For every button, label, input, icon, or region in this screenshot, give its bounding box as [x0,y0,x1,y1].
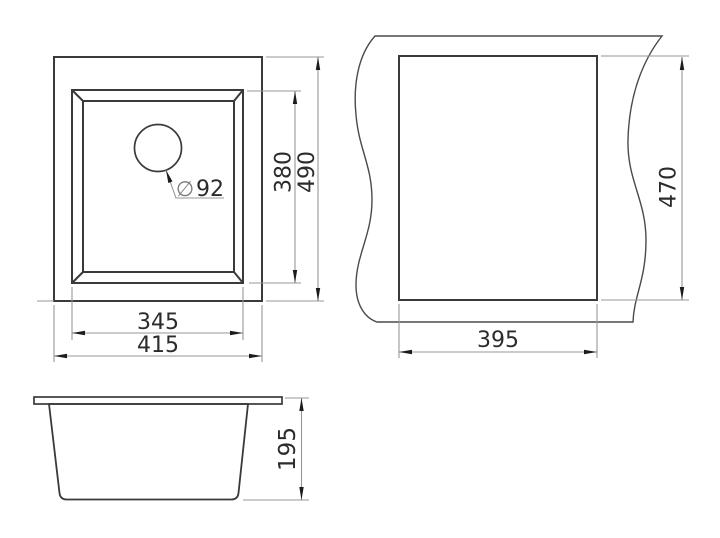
arrowhead-195-up [299,398,303,411]
drawing-canvas: ∅ 92 380 490 345 415 [0,0,720,538]
rim-bevel-bottom-left [72,272,83,283]
dim-text-195: 195 [275,427,301,471]
arrowhead-395-right [584,350,597,354]
rim-bevel-top-right [234,90,243,101]
top-view: ∅ 92 380 490 345 415 [37,57,324,362]
dim-text-490: 490 [295,151,320,193]
arrowhead-380-down [293,270,297,283]
drain-leader-arrowhead [166,170,173,183]
arrowhead-490-down [316,288,320,301]
arrowhead-195-down [299,487,303,500]
dim-text-470: 470 [657,166,682,208]
side-view: 195 [34,397,309,500]
drain-diameter-value: 92 [196,177,224,202]
drain-diameter-symbol: ∅ [176,177,194,201]
arrowhead-345-right [230,331,243,335]
rim-bevel-bottom-right [234,272,243,283]
arrowhead-470-down [680,287,684,300]
arrowhead-380-up [293,91,297,104]
dim-text-395: 395 [477,328,519,353]
dim-text-345: 345 [137,310,179,335]
arrowhead-490-up [316,57,320,70]
cutout-rectangle [399,56,597,300]
arrowhead-470-up [680,57,684,70]
technical-drawing: ∅ 92 380 490 345 415 [0,0,720,538]
arrowhead-415-left [54,354,67,358]
sink-body-profile [49,404,248,500]
countertop-break-outline [355,36,662,322]
arrowhead-395-left [399,350,412,354]
arrowhead-415-right [249,354,262,358]
sink-flange-profile [34,397,282,404]
arrowhead-345-left [72,331,85,335]
sink-outer-edge [54,57,262,301]
dim-text-380: 380 [272,151,297,193]
drain-hole [135,125,182,172]
dim-text-415: 415 [137,333,179,358]
cutout-view: 470 395 [355,36,689,358]
rim-bevel-top-left [72,90,83,101]
